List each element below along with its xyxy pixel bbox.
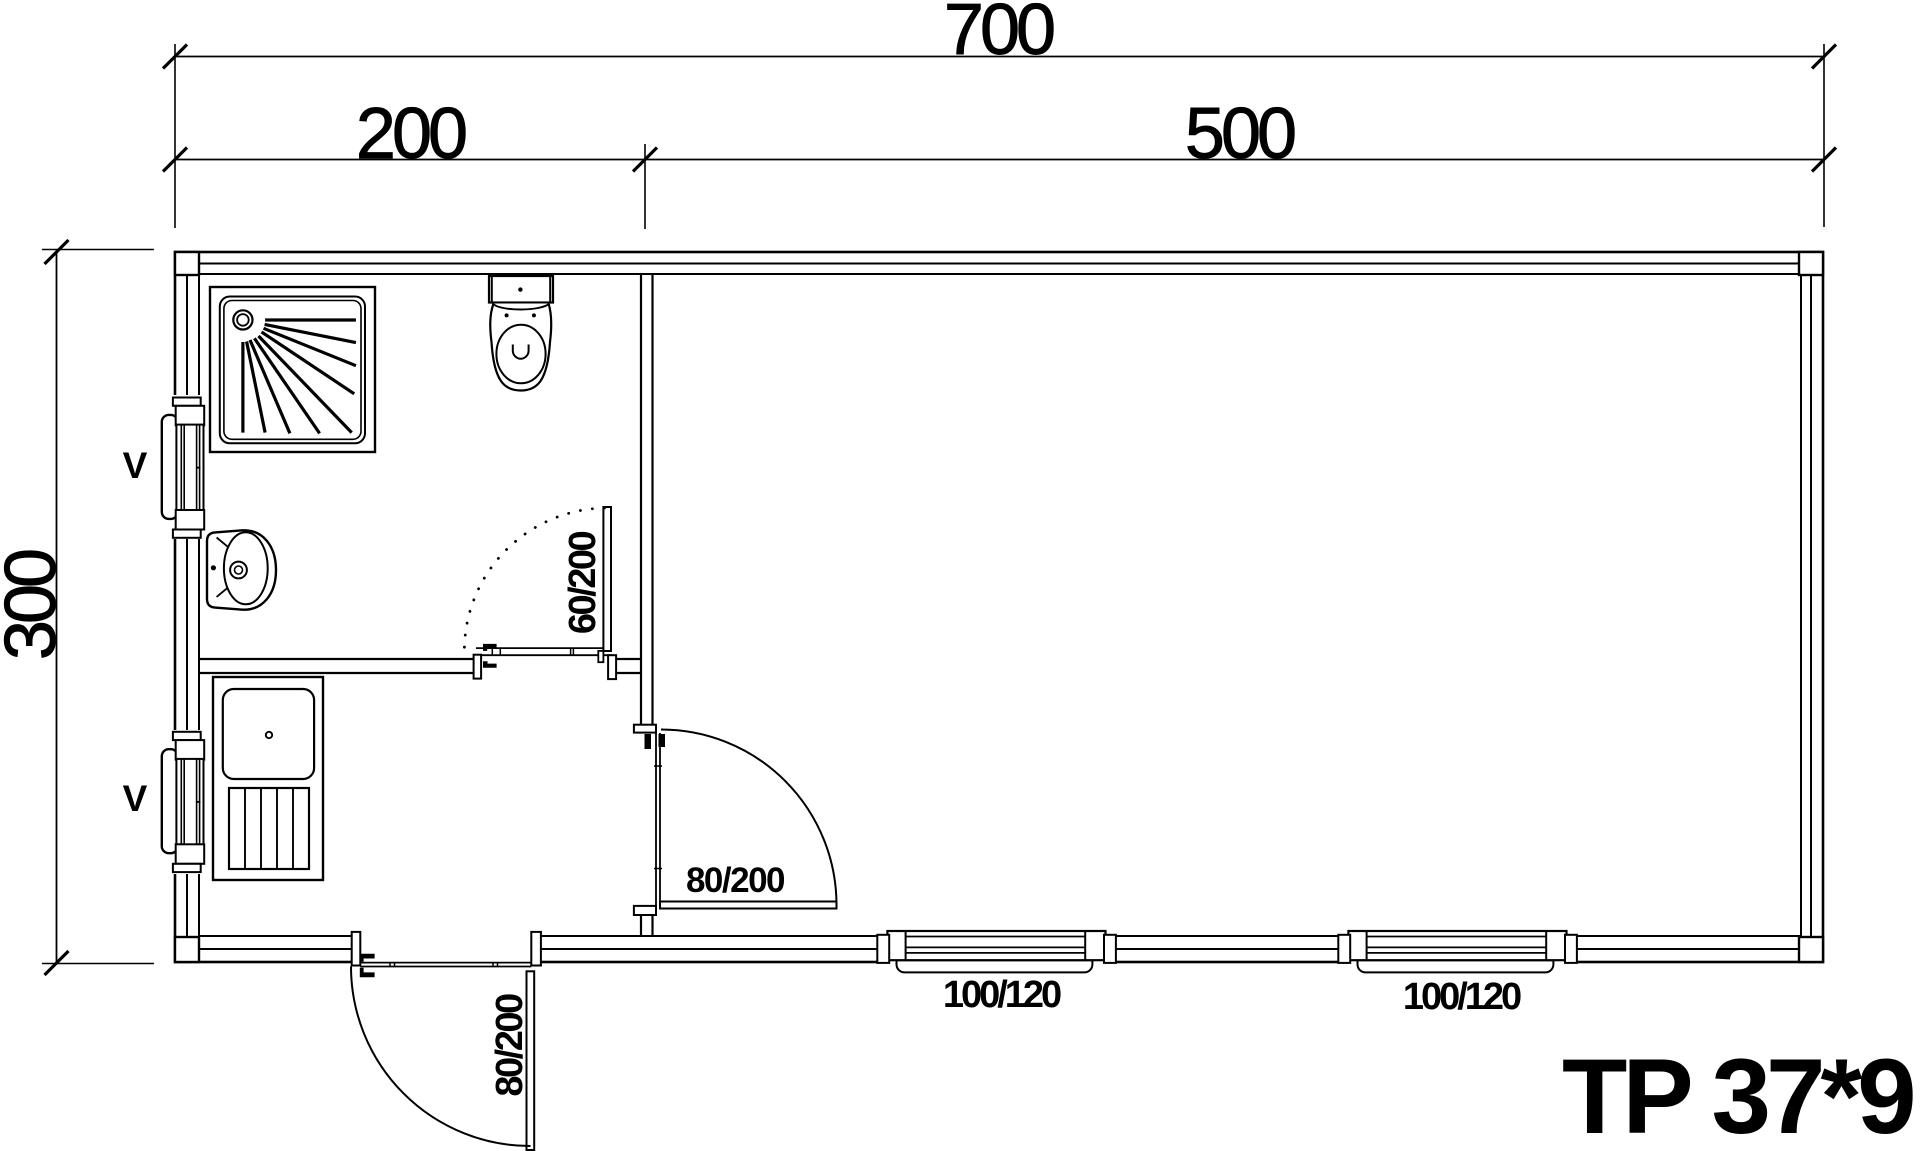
svg-text:500: 500 xyxy=(1185,94,1295,174)
svg-text:V: V xyxy=(123,778,148,819)
svg-text:V: V xyxy=(123,445,148,486)
svg-text:80/200: 80/200 xyxy=(489,994,531,1097)
svg-text:200: 200 xyxy=(356,94,466,174)
svg-text:300: 300 xyxy=(0,550,71,660)
svg-text:80/200: 80/200 xyxy=(686,861,785,900)
svg-text:100/120: 100/120 xyxy=(943,974,1061,1016)
svg-text:100/120: 100/120 xyxy=(1403,976,1521,1018)
svg-text:60/200: 60/200 xyxy=(562,532,604,635)
svg-text:700: 700 xyxy=(944,0,1054,70)
svg-text:TP 37*9: TP 37*9 xyxy=(1562,1036,1913,1151)
